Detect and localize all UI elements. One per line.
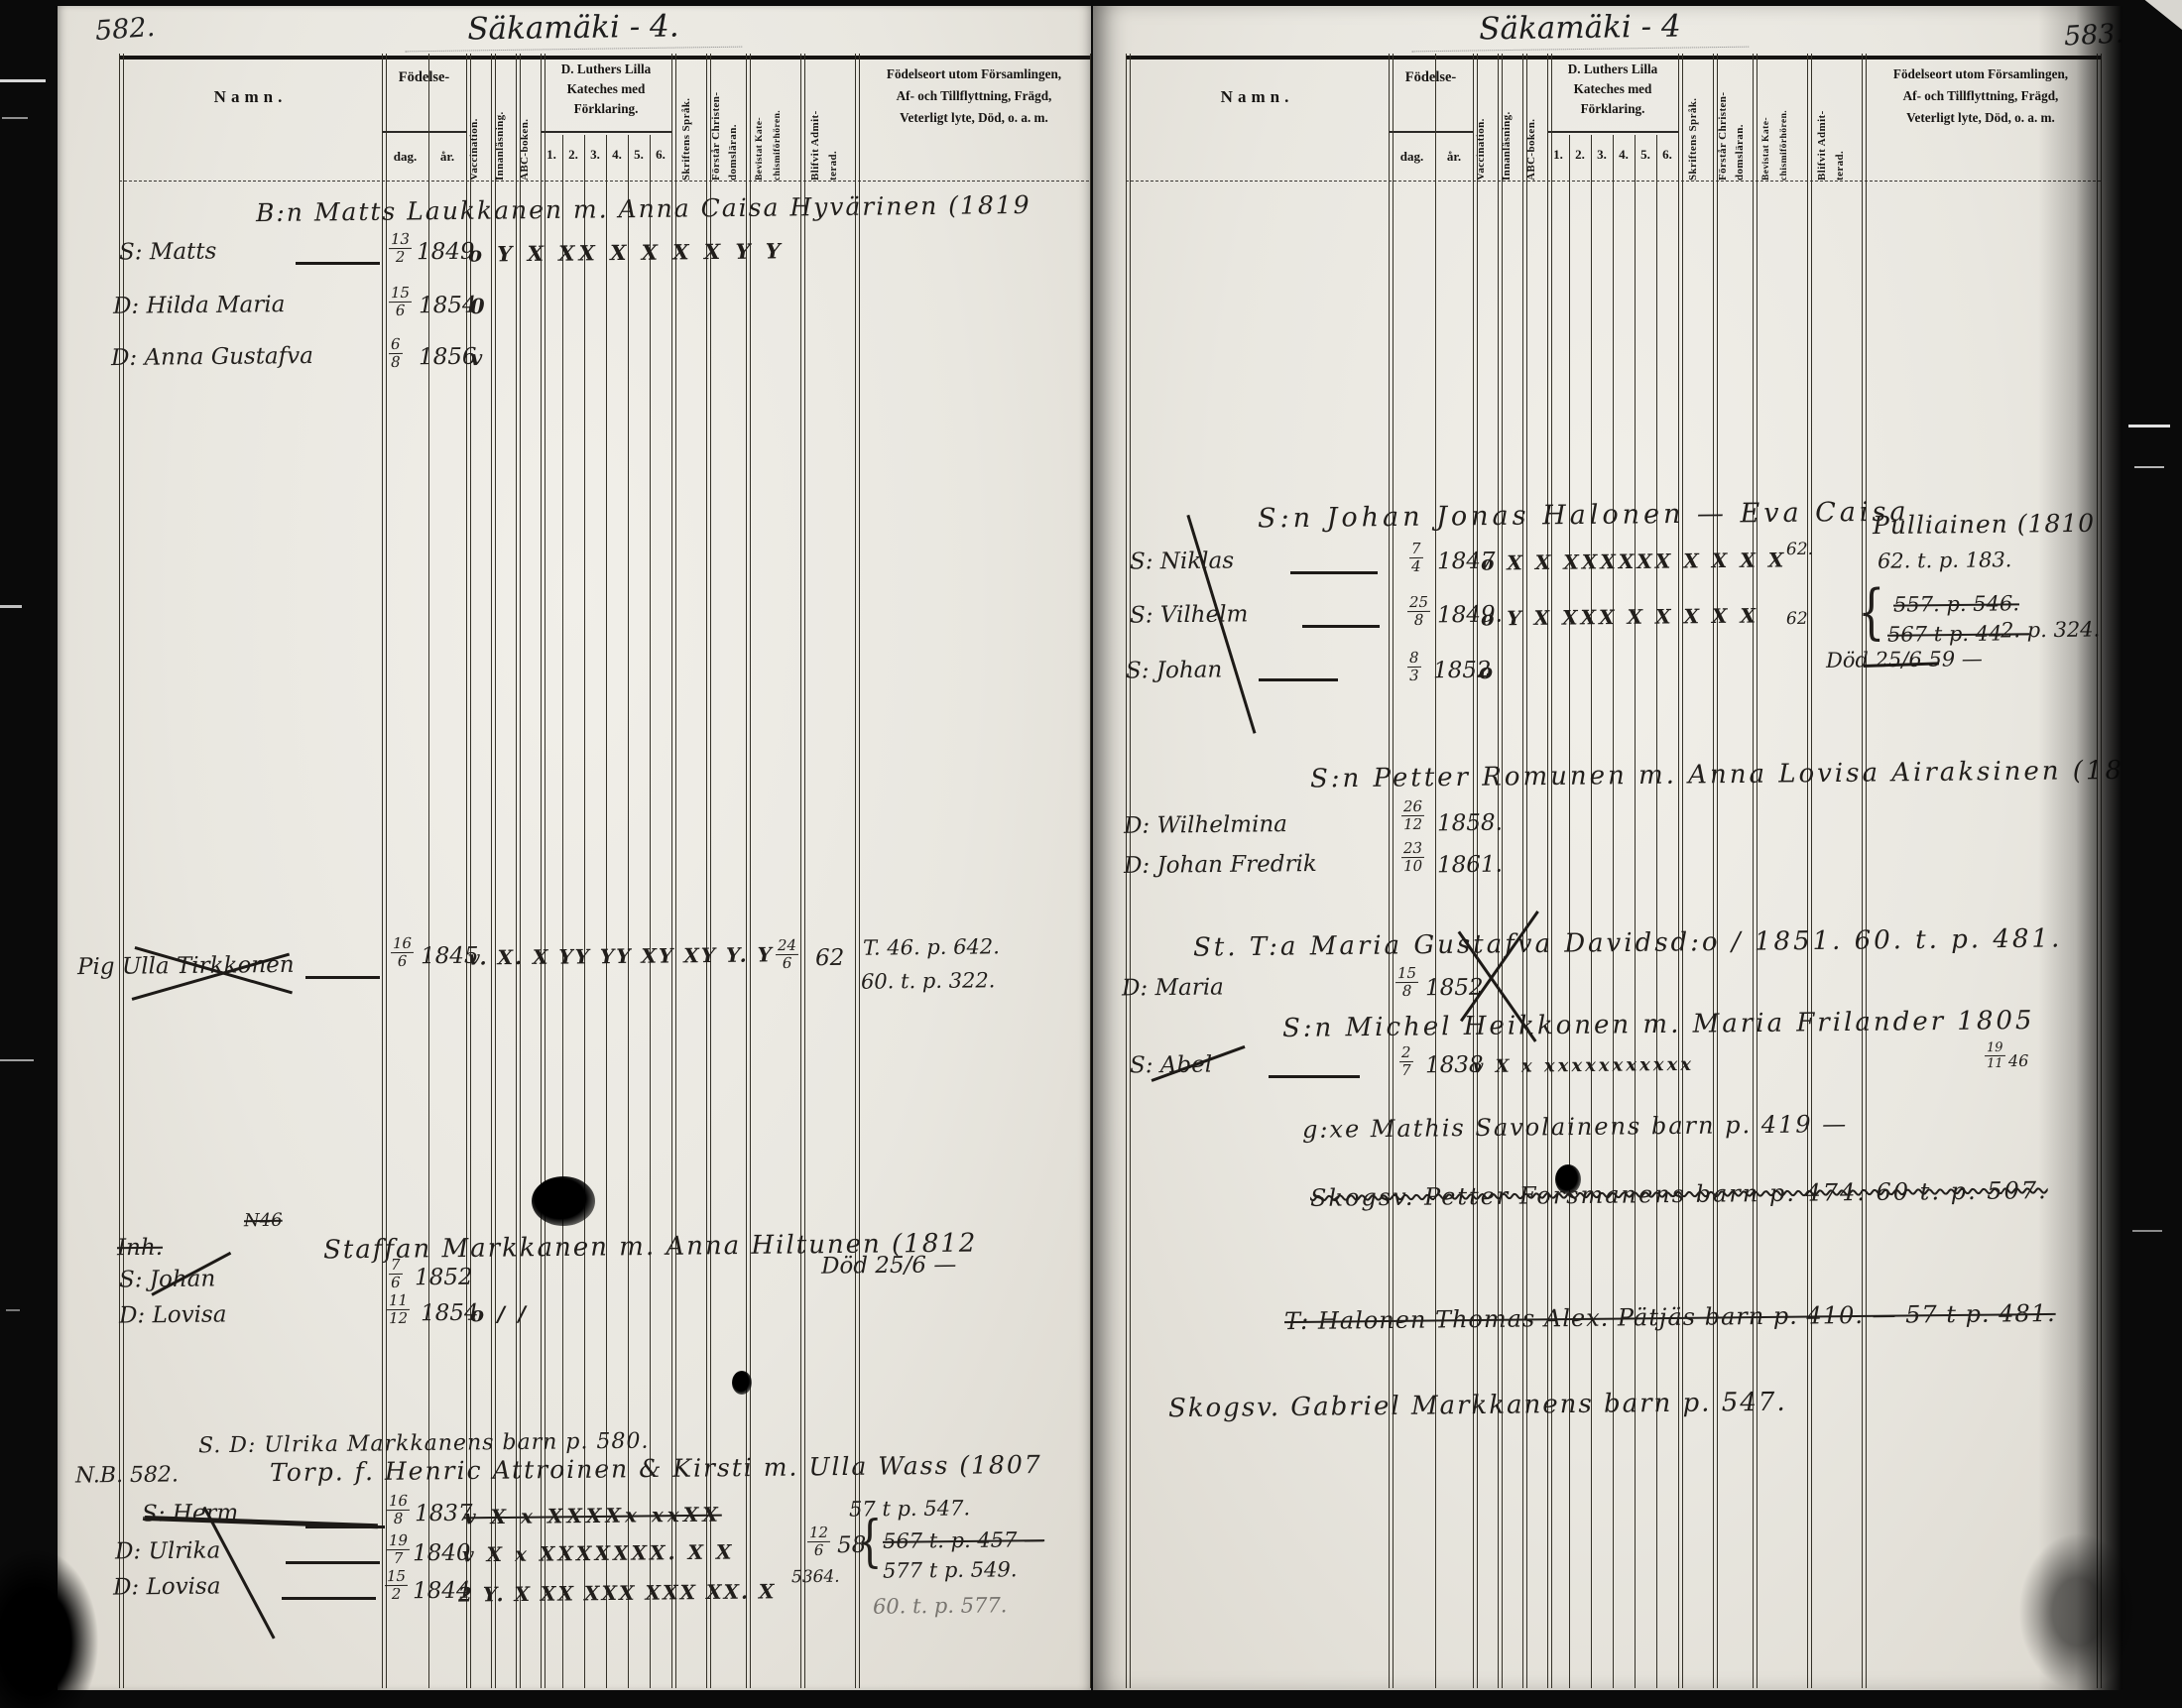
col-header-ar: år. xyxy=(1435,149,1473,165)
column-rule xyxy=(1435,54,1436,1688)
birth-day: 83 xyxy=(1407,651,1421,683)
reference-note: Skogsv. Gabriel Markkanens barn p. 547. xyxy=(1168,1390,1787,1423)
family-header: Pulliainen (1810 xyxy=(1873,511,2095,540)
margin-note: 60. t. p. 577. xyxy=(873,1594,1008,1617)
admitted-year: 62 xyxy=(815,946,845,970)
col-header-namn: Namn. xyxy=(119,87,382,107)
kateches-number: 6. xyxy=(650,147,671,163)
death-note: Död 25/6 — xyxy=(821,1253,957,1279)
scan-artifact xyxy=(0,605,22,608)
margin-date: 46 xyxy=(2008,1053,2029,1070)
kateches-number: 3. xyxy=(1591,147,1613,163)
frac-numerator: 7 xyxy=(1409,542,1423,558)
frac-denominator: 12 xyxy=(1403,816,1422,832)
kateches-line2: Kateches med xyxy=(541,79,671,99)
kateches-number: 3. xyxy=(584,147,606,163)
frac-numerator: 8 xyxy=(1407,651,1421,668)
birth-year: 1856 xyxy=(419,345,477,370)
column-rule xyxy=(1090,54,1091,1688)
name-dash xyxy=(286,1561,380,1564)
frac-numerator: 15 xyxy=(1395,966,1418,983)
frac-denominator: 8 xyxy=(394,1511,404,1526)
column-rule xyxy=(706,54,711,1688)
left-page: 582. Säkamäki - 4. Namn. Födelse- dag. å… xyxy=(58,6,1091,1690)
scan-artifact xyxy=(2128,425,2170,427)
kateches-number: 5. xyxy=(1635,147,1656,163)
column-rule xyxy=(1591,135,1592,1688)
exam-marks: o / / xyxy=(470,1303,529,1326)
person-name: D: Maria xyxy=(1122,975,1224,1000)
scan-artifact xyxy=(2018,1532,2137,1691)
column-rule xyxy=(1713,54,1718,1688)
reference-note: S. D: Ulrika Markkanens barn p. 580. xyxy=(198,1430,650,1458)
margin-note: 557. p. 546. xyxy=(1893,592,2019,615)
notes-line3: Veterligt lyte, Död, o. a. m. xyxy=(857,107,1091,129)
register-scan: 582. Säkamäki - 4. Namn. Födelse- dag. å… xyxy=(0,0,2182,1708)
birth-year: 1854 xyxy=(419,294,477,318)
kateches-line3: Förklaring. xyxy=(1547,99,1678,119)
family-header: S:n Michel Heikkonen m. Maria Frilander … xyxy=(1282,1008,2035,1042)
column-rule xyxy=(1862,54,1867,1688)
birth-day: 166 xyxy=(391,936,414,969)
scan-artifact xyxy=(2,117,28,119)
exam-marks: 0 xyxy=(470,296,485,317)
frac-denominator: 10 xyxy=(1403,858,1422,874)
scan-artifact xyxy=(2138,0,2182,30)
exam-marks: v X x XXXXx xxXX xyxy=(464,1505,722,1528)
name-dash xyxy=(296,262,380,265)
frac-numerator: 16 xyxy=(387,1494,410,1511)
col-header-notes: Födelseort utom Församlingen, Af- och Ti… xyxy=(1864,63,2098,128)
exam-marks: o Y X XXX X X X X X xyxy=(1481,606,1758,630)
frac-denominator: 6 xyxy=(814,1542,824,1558)
reference-note: T: Halonen Thomas Alex. Pätjäs barn p. 4… xyxy=(1284,1301,2056,1334)
name-dash xyxy=(1290,571,1378,574)
person-name: D: Anna Gustafva xyxy=(111,344,313,370)
frac-denominator: 4 xyxy=(1411,558,1421,574)
header-divider xyxy=(1389,131,1473,133)
exam-marks: v X x xxxxxxxxxxx xyxy=(1473,1056,1694,1077)
margin-note: N.B. 582. xyxy=(75,1463,179,1487)
person-name: S: Vilhelm xyxy=(1130,602,1249,627)
col-header-fodelse: Födelse- xyxy=(382,69,466,86)
exam-marks: o X X XXXXXX X X X X xyxy=(1481,549,1787,573)
frac-denominator: 2 xyxy=(392,1586,402,1602)
margin-date: 62 xyxy=(1786,611,1808,629)
birth-year: 1852 xyxy=(415,1266,473,1290)
death-note: Död 25/6 59 — xyxy=(1826,648,1983,671)
title-abbrev: Inh. xyxy=(117,1236,163,1261)
header-bottom-rule xyxy=(119,181,1091,182)
kateches-number: 2. xyxy=(562,147,584,163)
birth-day: 168 xyxy=(387,1494,410,1526)
notes-line1: Födelseort utom Församlingen, xyxy=(1864,63,2098,85)
exam-marks: o xyxy=(1479,661,1493,682)
person-name: D: Ulrika xyxy=(115,1538,220,1563)
name-dash xyxy=(305,1525,385,1528)
margin-note: 577 t p. 549. xyxy=(883,1558,1018,1581)
person-name: D: Wilhelmina xyxy=(1124,812,1287,838)
frac-numerator: 19 xyxy=(1985,1041,2005,1056)
notes-line2: Af- och Tillflyttning, Frägd, xyxy=(857,85,1091,107)
column-rule xyxy=(1389,54,1394,1688)
family-header: Torp. f. Henric Attroinen & Kirsti m. Ul… xyxy=(270,1452,1042,1486)
name-dash xyxy=(1269,1075,1360,1078)
frac-denominator: 3 xyxy=(1409,668,1419,683)
right-page-inner: 583. Säkamäki - 4 Namn. Födelse- dag. år… xyxy=(1093,6,2122,1690)
margin-note: N46 xyxy=(244,1212,283,1231)
frac-numerator: 24 xyxy=(776,938,798,955)
margin-note: 5364. xyxy=(791,1569,840,1587)
frac-denominator: 6 xyxy=(783,955,792,971)
ink-blot xyxy=(532,1176,595,1226)
page-title: Säkamäki - 4. xyxy=(405,8,743,53)
scan-artifact xyxy=(0,1059,34,1061)
frac-denominator: 12 xyxy=(389,1310,408,1326)
column-rule xyxy=(1656,135,1657,1688)
brace: { xyxy=(1858,585,1884,639)
frac-numerator: 15 xyxy=(385,1569,408,1586)
exam-marks: o Y X XX X X X X Y Y xyxy=(468,240,785,265)
header-divider xyxy=(541,131,671,133)
reference-note: g:xe Mathis Savolainens barn p. 419 — xyxy=(1302,1112,1848,1143)
kateches-number: 2. xyxy=(1569,147,1591,163)
kateches-line2: Kateches med xyxy=(1547,79,1678,99)
frac-numerator: 19 xyxy=(387,1533,410,1550)
frac-numerator: 7 xyxy=(389,1258,403,1275)
col-header-dag: dag. xyxy=(1389,149,1435,165)
birth-day: 1112 xyxy=(387,1293,410,1326)
frac-numerator: 16 xyxy=(391,936,414,953)
kateches-line3: Förklaring. xyxy=(541,99,671,119)
birth-day: 158 xyxy=(1395,966,1418,999)
family-header: St. T:a Maria Gustafva Davidsd:o / 1851.… xyxy=(1193,925,2063,961)
name-dash xyxy=(1259,678,1338,681)
kateches-line1: D. Luthers Lilla xyxy=(1547,60,1678,79)
col-header-forstar-2: domsläran. xyxy=(727,56,739,181)
col-header-bevistat-1: Bevistat Kate- xyxy=(1760,56,1771,181)
frac-numerator: 23 xyxy=(1401,841,1424,858)
frac-numerator: 15 xyxy=(389,286,412,303)
person-name: S: Johan xyxy=(119,1267,215,1291)
frac-denominator: 7 xyxy=(394,1550,404,1566)
col-header-kateches: D. Luthers Lilla Kateches med Förklaring… xyxy=(541,60,671,118)
column-rule xyxy=(746,54,751,1688)
margin-date: 62. xyxy=(1786,542,1813,559)
col-header-blifvit-2: terad. xyxy=(1834,56,1846,181)
person-name: Pig Ulla Tirkkonen xyxy=(77,953,295,979)
name-dash xyxy=(282,1597,376,1600)
family-header: B:n Matts Laukkanen m. Anna Caisa Hyväri… xyxy=(256,192,1031,226)
frac-denominator: 6 xyxy=(398,953,408,969)
col-header-bevistat-2: chismiförhören. xyxy=(772,56,783,181)
person-name: S: Matts xyxy=(119,239,217,264)
frac-denominator: 7 xyxy=(1401,1062,1411,1078)
birth-day: 156 xyxy=(389,286,412,318)
notes-line2: Af- och Tillflyttning, Frägd, xyxy=(1864,85,2098,107)
scan-artifact xyxy=(2134,466,2164,468)
page-number: 583. xyxy=(2063,18,2122,52)
col-header-bevistat-1: Bevistat Kate- xyxy=(754,56,765,181)
col-header-dag: dag. xyxy=(382,149,428,165)
frac-numerator: 13 xyxy=(389,232,412,249)
margin-note: 2. p. 324. xyxy=(2000,618,2100,641)
exam-marks: v xyxy=(470,347,482,369)
family-header: S:n Johan Jonas Halonen — Eva Caisa xyxy=(1258,499,1910,534)
birth-day: 258 xyxy=(1407,595,1430,628)
col-header-skriftens-sprak: Skriftens Språk. xyxy=(1687,56,1699,181)
header-divider xyxy=(382,131,466,133)
brace: { xyxy=(857,1518,883,1567)
birth-day: 152 xyxy=(385,1569,408,1602)
col-header-namn: Namn. xyxy=(1126,87,1389,107)
col-header-bevistat-2: chismiförhören. xyxy=(1778,56,1789,181)
frac-numerator: 11 xyxy=(387,1293,410,1310)
frac-denominator: 6 xyxy=(391,1275,401,1290)
col-header-forstar-1: Förstår Christen- xyxy=(1717,56,1729,181)
birth-day: 2310 xyxy=(1401,841,1424,874)
scan-artifact xyxy=(6,1309,20,1311)
left-page-inner: 582. Säkamäki - 4. Namn. Födelse- dag. å… xyxy=(58,6,1091,1690)
frac-denominator: 11 xyxy=(1987,1056,2003,1070)
col-header-blifvit-1: Blifvit Admit- xyxy=(1816,56,1828,181)
birth-day: 2612 xyxy=(1401,799,1424,832)
notes-line3: Veterligt lyte, Död, o. a. m. xyxy=(1864,107,2098,129)
column-rule xyxy=(2097,54,2102,1688)
frac-denominator: 8 xyxy=(1402,983,1412,999)
margin-date: 1911 xyxy=(1985,1041,2005,1070)
birth-day: 68 xyxy=(389,337,403,370)
margin-note: T. 46. p. 642. xyxy=(863,935,1000,958)
notes-line1: Födelseort utom Församlingen, xyxy=(857,63,1091,85)
column-rule xyxy=(1547,54,1552,1688)
col-header-kateches: D. Luthers Lilla Kateches med Förklaring… xyxy=(1547,60,1678,118)
birth-day: 74 xyxy=(1409,542,1423,574)
birth-year: 1858. xyxy=(1437,811,1503,836)
right-page: 583. Säkamäki - 4 Namn. Födelse- dag. år… xyxy=(1093,6,2122,1690)
frac-numerator: 12 xyxy=(807,1525,830,1542)
frac-denominator: 2 xyxy=(396,249,406,265)
column-rule xyxy=(1807,54,1812,1688)
exam-marks: v. X. X YY YY XY XY Y. Y xyxy=(468,944,774,968)
col-header-fodelse: Födelse- xyxy=(1389,69,1473,86)
col-header-blifvit-1: Blifvit Admit- xyxy=(809,56,821,181)
col-header-notes: Födelseort utom Församlingen, Af- och Ti… xyxy=(857,63,1091,128)
person-name: D: Johan Fredrik xyxy=(1124,852,1317,878)
column-rule xyxy=(1522,54,1527,1688)
frac-denominator: 8 xyxy=(1414,612,1424,628)
reference-note: Skogsv. Petter Forsmanens barn p. 474. 6… xyxy=(1310,1178,2048,1211)
person-name: S: Johan xyxy=(1126,658,1222,682)
kateches-number: 5. xyxy=(628,147,650,163)
column-rule xyxy=(1678,54,1683,1688)
margin-note: 60. t. p. 322. xyxy=(861,969,996,992)
column-rule xyxy=(1613,135,1614,1688)
admitted-date: 246 xyxy=(776,938,798,971)
column-rule xyxy=(800,54,805,1688)
frac-numerator: 2 xyxy=(1399,1045,1413,1062)
page-number: 582. xyxy=(94,12,156,47)
birth-day: 27 xyxy=(1399,1045,1413,1078)
kateches-number: 4. xyxy=(606,147,628,163)
column-rule xyxy=(671,54,676,1688)
kateches-line1: D. Luthers Lilla xyxy=(541,60,671,79)
frac-numerator: 6 xyxy=(389,337,403,354)
column-rule xyxy=(855,54,860,1688)
scan-artifact xyxy=(2132,1230,2162,1232)
margin-note: 62. t. p. 183. xyxy=(1878,549,2012,571)
name-dash xyxy=(1302,625,1380,628)
scan-artifact xyxy=(0,79,46,82)
frac-denominator: 6 xyxy=(396,303,406,318)
person-name: S: Niklas xyxy=(1130,549,1234,573)
person-name: D: Lovisa xyxy=(119,1302,227,1327)
person-name: D: Hilda Maria xyxy=(113,293,286,318)
birth-year: 1849 xyxy=(417,240,475,265)
birth-year: 1861. xyxy=(1437,853,1503,878)
scan-artifact xyxy=(0,1547,99,1708)
header-divider xyxy=(1547,131,1678,133)
frac-denominator: 8 xyxy=(391,354,401,370)
birth-day: 76 xyxy=(389,1258,403,1290)
frac-numerator: 26 xyxy=(1401,799,1424,816)
col-header-blifvit-2: terad. xyxy=(827,56,839,181)
birth-year: 1852 xyxy=(1425,976,1484,1001)
column-rule xyxy=(1635,135,1636,1688)
birth-day: 197 xyxy=(387,1533,410,1566)
column-rule xyxy=(1569,135,1570,1688)
exam-marks: v X x XXXXXXX. X X xyxy=(462,1542,735,1566)
page-title: Säkamäki - 4 xyxy=(1411,8,1750,53)
birth-day: 132 xyxy=(389,232,412,265)
col-header-skriftens-sprak: Skriftens Språk. xyxy=(680,56,692,181)
ink-blot xyxy=(732,1371,752,1395)
frac-numerator: 25 xyxy=(1407,595,1430,612)
family-header: S:n Petter Romunen m. Anna Lovisa Airaks… xyxy=(1310,757,2122,793)
column-rule xyxy=(1753,54,1758,1688)
exam-marks: 2 Y. X XX XXX XXX XX. X xyxy=(458,1581,777,1605)
margin-date: 126 xyxy=(807,1525,830,1558)
col-header-forstar-2: domsläran. xyxy=(1734,56,1746,181)
kateches-number: 4. xyxy=(1613,147,1635,163)
col-header-forstar-1: Förstår Christen- xyxy=(710,56,722,181)
kateches-number: 6. xyxy=(1656,147,1678,163)
col-header-ar: år. xyxy=(428,149,466,165)
person-name: D: Lovisa xyxy=(113,1574,221,1599)
name-dash xyxy=(305,976,380,979)
margin-note: 567 t. p. 457 — xyxy=(883,1528,1044,1552)
